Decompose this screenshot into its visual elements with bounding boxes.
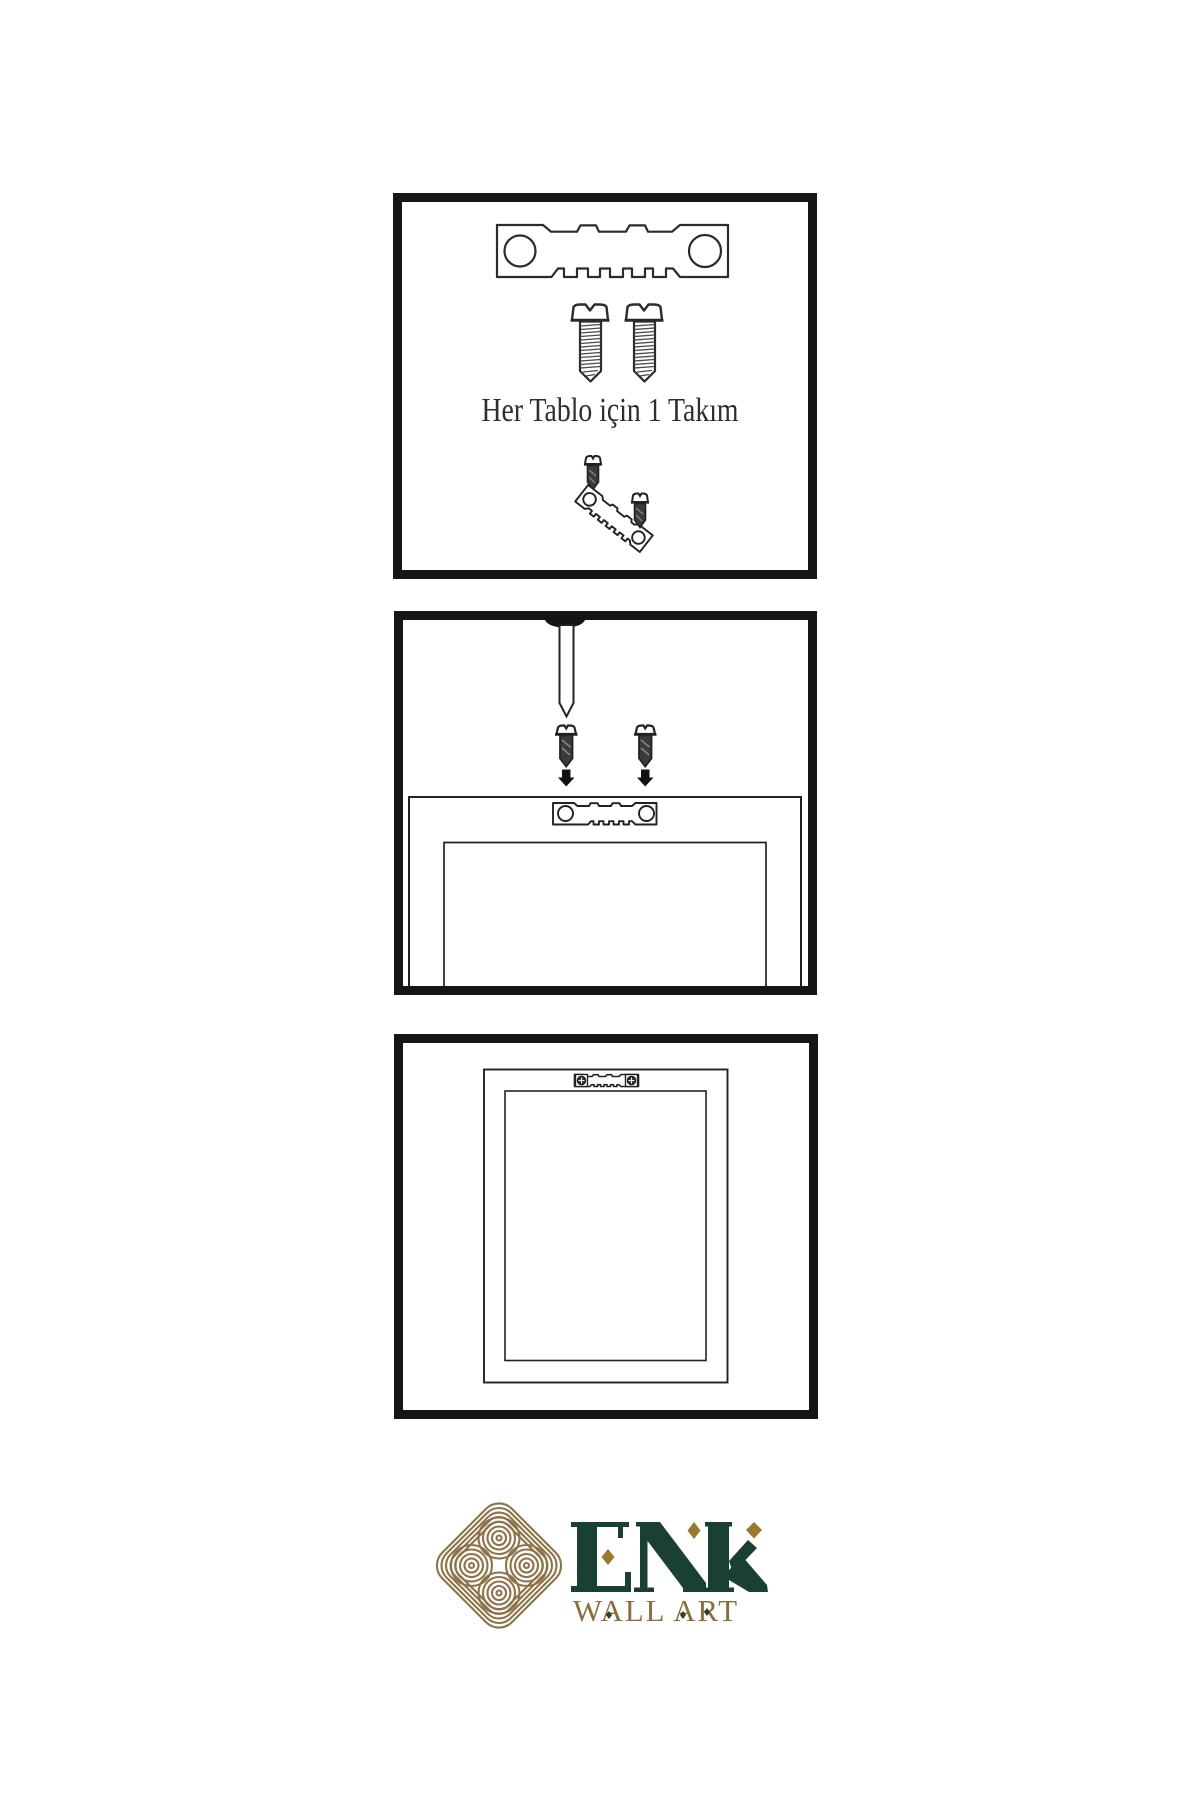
svg-text:Her Tablo için 1 Takım: Her Tablo için 1 Takım (482, 392, 739, 429)
svg-text:WALL ART: WALL ART (573, 1593, 739, 1628)
